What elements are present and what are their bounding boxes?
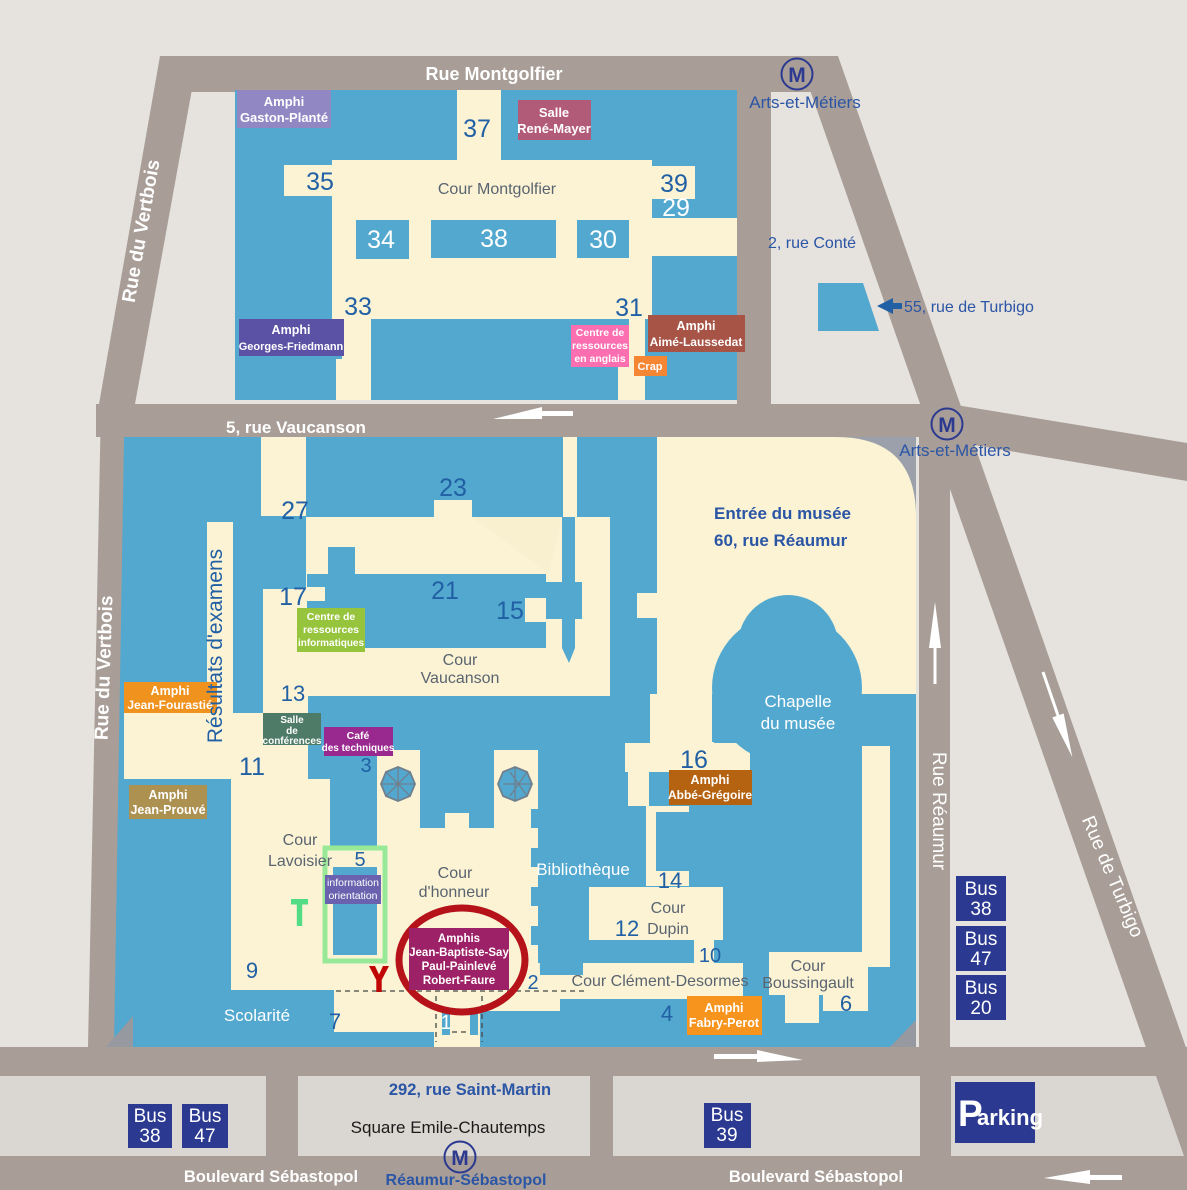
svg-text:d'honneur: d'honneur [419,884,490,901]
svg-text:38: 38 [139,1126,160,1147]
svg-text:Bus: Bus [965,879,998,900]
svg-text:Bus: Bus [189,1106,222,1127]
svg-text:33: 33 [344,293,372,321]
svg-text:3: 3 [360,755,371,777]
svg-text:1: 1 [440,1012,451,1034]
svg-text:17: 17 [279,583,307,611]
svg-text:en anglais: en anglais [574,353,626,365]
svg-text:conférences: conférences [263,736,322,747]
svg-text:Paul-Painlevé: Paul-Painlevé [422,961,497,973]
svg-text:des techniques: des techniques [322,743,395,754]
svg-text:Amphi: Amphi [705,1001,744,1015]
svg-text:Dupin: Dupin [647,921,689,938]
svg-text:Bibliothèque: Bibliothèque [536,860,630,879]
svg-text:René-Mayer: René-Mayer [517,121,591,136]
svg-text:20: 20 [970,998,991,1019]
svg-text:Chapelle: Chapelle [764,692,831,711]
svg-text:23: 23 [439,474,467,502]
svg-text:Cour: Cour [438,865,473,882]
svg-text:M: M [788,64,806,87]
svg-text:Entrée du musée: Entrée du musée [714,504,851,523]
svg-text:Boulevard Sébastopol: Boulevard Sébastopol [729,1168,903,1186]
svg-text:15: 15 [496,597,524,625]
svg-text:5: 5 [354,849,365,871]
svg-text:M: M [451,1147,469,1170]
svg-text:Salle: Salle [280,715,304,726]
svg-text:Amphi: Amphi [264,94,304,109]
svg-text:14: 14 [658,868,682,893]
svg-text:Vaucanson: Vaucanson [421,670,500,687]
svg-text:Robert-Faure: Robert-Faure [423,975,495,987]
svg-text:39: 39 [716,1125,737,1146]
svg-text:37: 37 [463,115,491,143]
svg-text:31: 31 [615,294,643,322]
svg-text:Boulevard Sébastopol: Boulevard Sébastopol [184,1168,358,1186]
svg-text:30: 30 [589,226,617,254]
svg-text:Amphi: Amphi [151,684,190,698]
svg-text:Georges-Friedmann: Georges-Friedmann [239,341,344,353]
svg-text:Centre de: Centre de [576,327,625,339]
svg-text:292, rue Saint-Martin: 292, rue Saint-Martin [389,1081,551,1099]
svg-text:Jean-Fourastié: Jean-Fourastié [127,698,213,712]
svg-text:Bus: Bus [134,1106,167,1127]
svg-text:Boussingault: Boussingault [762,975,854,992]
svg-text:M: M [938,414,956,437]
svg-text:Fabry-Perot: Fabry-Perot [689,1016,760,1030]
svg-text:Arts-et-Métiers: Arts-et-Métiers [749,93,860,112]
svg-text:Centre de: Centre de [307,611,356,623]
svg-text:Jean-Baptiste-Say: Jean-Baptiste-Say [409,947,509,959]
svg-text:Amphi: Amphi [677,319,716,333]
svg-text:Résultats d'examens: Résultats d'examens [204,549,227,743]
svg-text:35: 35 [306,168,334,196]
svg-text:Bus: Bus [711,1105,744,1126]
svg-text:Arts-et-Métiers: Arts-et-Métiers [899,441,1010,460]
svg-text:Rue Montgolfier: Rue Montgolfier [426,64,563,84]
svg-text:Cour Montgolfier: Cour Montgolfier [438,181,557,198]
svg-text:Square Emile-Chautemps: Square Emile-Chautemps [351,1118,546,1137]
svg-text:Aimé-Laussedat: Aimé-Laussedat [650,335,743,349]
svg-text:Rue Réaumur: Rue Réaumur [928,752,949,871]
svg-text:60, rue Réaumur: 60, rue Réaumur [714,531,848,550]
svg-text:2: 2 [527,972,538,994]
svg-text:38: 38 [970,899,991,920]
svg-text:Café: Café [347,730,370,742]
svg-text:Bus: Bus [965,929,998,950]
svg-text:34: 34 [367,226,395,254]
svg-text:orientation: orientation [328,890,377,902]
svg-text:ressources: ressources [572,340,628,352]
svg-text:10: 10 [699,945,721,967]
svg-text:ressources: ressources [303,624,359,636]
svg-text:Salle: Salle [539,105,569,120]
svg-text:Gaston-Planté: Gaston-Planté [240,110,328,125]
svg-text:Réaumur-Sébastopol: Réaumur-Sébastopol [386,1172,547,1189]
svg-text:Amphi: Amphi [691,773,730,787]
svg-text:9: 9 [246,958,258,983]
svg-text:47: 47 [194,1126,215,1147]
svg-text:Cour Clément-Desormes: Cour Clément-Desormes [572,973,749,990]
svg-text:4: 4 [661,1001,673,1026]
svg-text:Scolarité: Scolarité [224,1006,290,1025]
svg-text:2, rue Conté: 2, rue Conté [768,235,856,252]
svg-text:16: 16 [680,746,708,774]
svg-text:Lavoisier: Lavoisier [268,853,333,870]
svg-text:6: 6 [840,991,852,1016]
svg-text:38: 38 [480,225,508,253]
svg-text:21: 21 [431,577,459,605]
svg-text:Crap: Crap [637,361,662,373]
svg-text:29: 29 [662,194,690,222]
svg-text:Cour: Cour [651,900,686,917]
svg-text:informatiques: informatiques [298,638,365,649]
svg-text:arking: arking [977,1105,1043,1130]
svg-text:11: 11 [239,753,265,781]
svg-text:13: 13 [281,681,305,706]
svg-text:27: 27 [281,497,309,525]
svg-text:Cour: Cour [791,958,826,975]
svg-text:information: information [327,877,379,889]
svg-text:Amphi: Amphi [149,788,188,802]
svg-text:5, rue Vaucanson: 5, rue Vaucanson [226,418,366,437]
svg-text:47: 47 [970,949,991,970]
svg-text:Amphis: Amphis [438,933,480,945]
svg-text:du musée: du musée [761,714,836,733]
svg-text:55, rue de Turbigo: 55, rue de Turbigo [904,299,1034,316]
svg-text:Bus: Bus [965,978,998,999]
svg-text:Amphi: Amphi [272,323,311,337]
svg-text:Cour: Cour [443,652,478,669]
svg-text:7: 7 [329,1009,341,1034]
svg-text:Jean-Prouvé: Jean-Prouvé [130,803,205,817]
svg-text:Abbé-Grégoire: Abbé-Grégoire [668,788,752,802]
svg-text:Cour: Cour [283,832,318,849]
svg-text:12: 12 [615,916,639,941]
